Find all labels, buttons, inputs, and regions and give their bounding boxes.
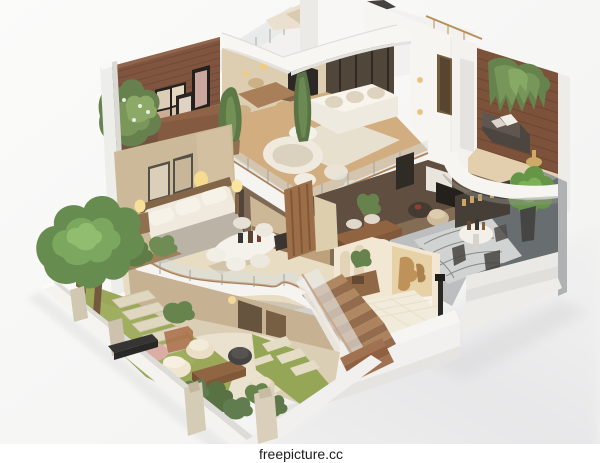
- svg-text:freepicture.cc: freepicture.cc: [259, 446, 343, 462]
